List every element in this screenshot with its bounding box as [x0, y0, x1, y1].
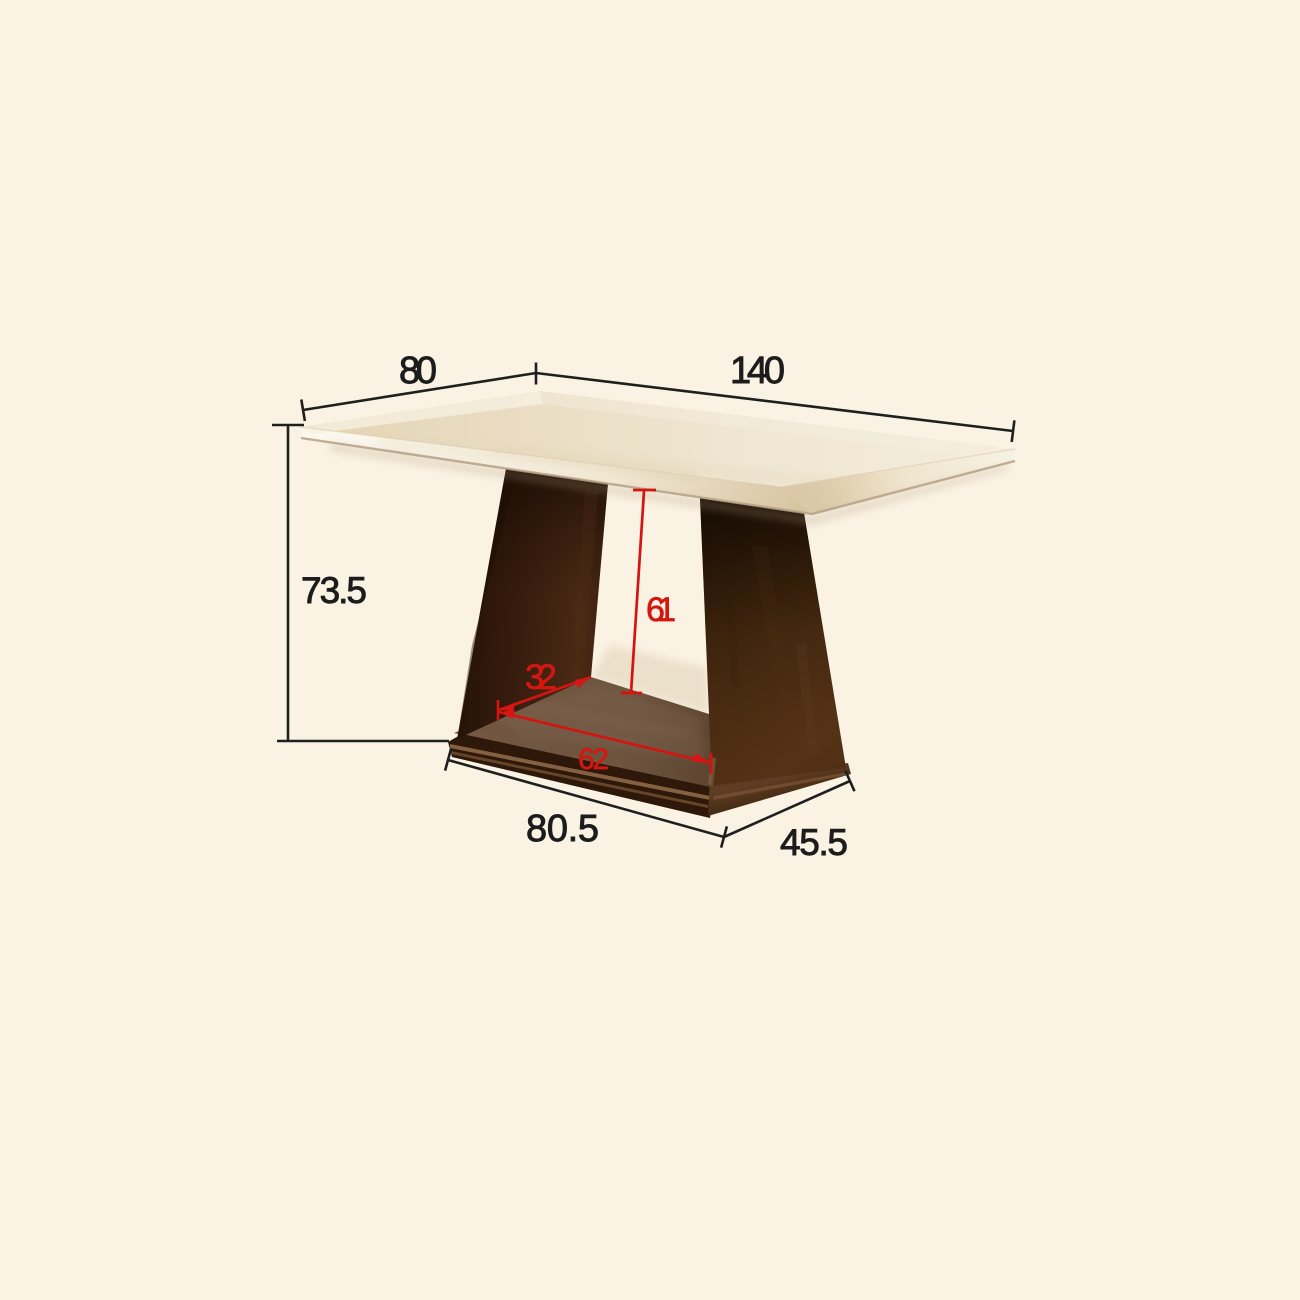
svg-text:80.5: 80.5 [526, 808, 599, 850]
svg-text:61: 61 [646, 591, 676, 629]
svg-text:73.5: 73.5 [301, 570, 367, 611]
svg-text:32: 32 [525, 658, 557, 697]
svg-text:62: 62 [578, 743, 609, 776]
svg-text:80: 80 [399, 350, 437, 392]
svg-text:45.5: 45.5 [780, 822, 848, 863]
svg-text:140: 140 [730, 350, 785, 392]
